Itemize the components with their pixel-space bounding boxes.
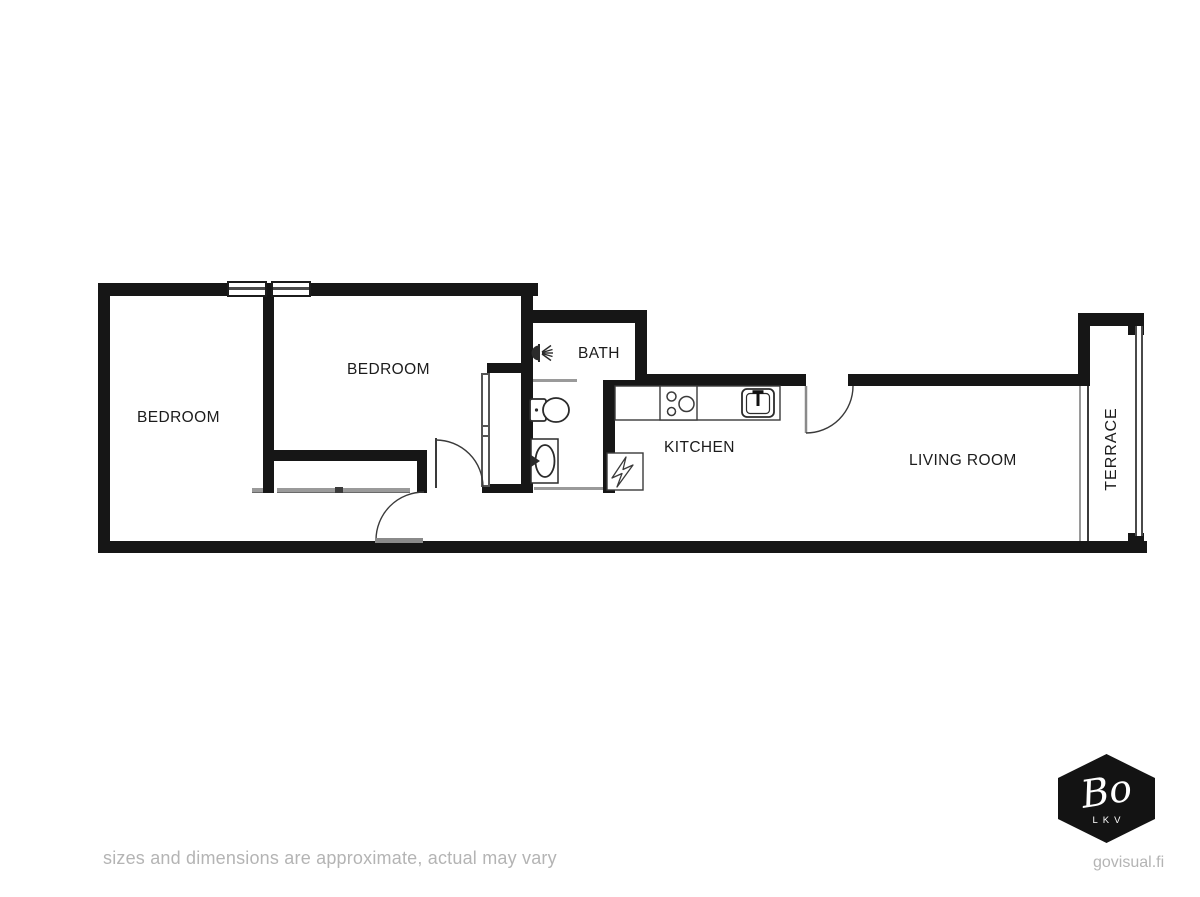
wall-kitchen-west [603,380,615,493]
fixtures-overlay [0,0,1200,897]
wall-terrace-post [1078,313,1090,386]
wall-livingroom-top [848,374,1078,386]
wall-door-post [417,450,427,493]
kitchen-sink-faucet-icon [742,389,774,417]
wall-bath-west [521,283,533,493]
toilet-icon [530,398,569,422]
room-label-bath: BATH [578,345,620,363]
shower-head-icon [532,344,554,362]
wall-exterior-left [98,283,110,553]
entrance-door-threshold [375,538,423,543]
terrace-glass-wall [1079,386,1089,541]
room-label-bedroom1: BEDROOM [137,409,220,427]
window-pane-line [229,287,265,290]
shower-partition-line [533,379,577,382]
stove-burners-icon [660,386,697,420]
room-label-kitchen: KITCHEN [664,439,735,457]
kitchen-counter [615,386,780,420]
closet-joint-tick [335,487,343,493]
washbasin-icon [531,439,558,483]
room-label-bedroom2: BEDROOM [347,361,430,379]
entrance-door-swing-arc [376,492,424,540]
closet-front-stub [252,488,263,493]
wardrobe-unit [481,373,490,487]
wall-kitchen-top [647,374,806,386]
wall-bedroom-divider [263,283,274,493]
disclaimer-text: sizes and dimensions are approximate, ac… [103,848,557,869]
window-bedroom2 [271,281,311,297]
website-credit: govisual.fi [1093,854,1164,872]
bedroom2-door-swing-arc [436,438,483,488]
window-pane-line [273,287,309,290]
room-label-terrace: TERRACE [1103,407,1121,490]
brand-logo-script: Bo [1079,770,1135,812]
wardrobe-divider [483,425,488,427]
bath-sliding-door-line [534,487,603,490]
closet-sliding-front [277,488,410,493]
brand-logo-subtitle: LKV [1088,815,1126,826]
wall-exterior-bottom [98,541,1147,553]
wall-bath-east [635,310,647,386]
room-label-living-room: LIVING ROOM [909,452,1017,470]
wall-exterior-top [98,283,538,296]
wall-wardrobe-stub [487,363,523,373]
brand-logo-hexagon: Bo LKV [1058,754,1155,843]
wall-bath-top [533,310,647,323]
wardrobe-divider [483,435,488,437]
window-bedroom1 [227,281,267,297]
wall-bedroom2-bottom [263,450,427,461]
wall-terrace-se-corner [1128,533,1144,553]
terrace-railing [1135,326,1143,536]
livingroom-door-swing-arc [806,386,853,433]
floor-plan-canvas: BEDROOM BEDROOM BATH KITCHEN LIVING ROOM… [0,0,1200,897]
